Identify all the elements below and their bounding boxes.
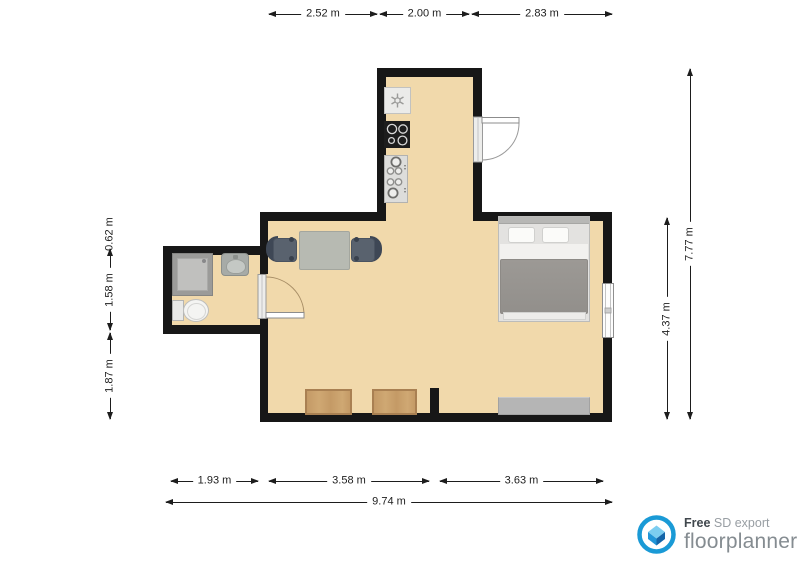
dimension-left-2: 1.58 m <box>105 248 115 331</box>
bed-pillow-right <box>542 227 569 243</box>
arrow-right-icon <box>605 11 613 17</box>
arrow-right-icon <box>596 478 604 484</box>
dimension-top-2: 2.00 m <box>379 9 470 19</box>
arrow-down-icon <box>107 323 113 331</box>
dimension-right-outer: 7.77 m <box>685 68 695 420</box>
fan-icon <box>389 92 406 109</box>
dimension-right-inner: 4.37 m <box>662 217 672 420</box>
brand-name: floorplanner <box>684 531 797 552</box>
wall-kitchen-right-upper <box>473 68 482 117</box>
door-leaf <box>266 313 304 319</box>
arrow-up-icon <box>107 248 113 256</box>
arrow-down-icon <box>107 412 113 420</box>
dim-label: 2.00 m <box>403 8 447 21</box>
dim-label: 4.37 m <box>661 297 674 341</box>
dresser <box>498 397 590 415</box>
wall-interior-stub <box>430 388 439 422</box>
dim-label: 1.93 m <box>193 475 237 488</box>
bathroom-door <box>254 272 310 322</box>
dim-label: 1.58 m <box>104 268 117 312</box>
window <box>602 283 614 338</box>
chair-left <box>266 236 297 262</box>
dim-label: 3.58 m <box>327 475 371 488</box>
floorplanner-logo: Free SD export floorplanner <box>636 514 797 555</box>
entry-door <box>471 112 523 166</box>
washbasin <box>221 253 249 276</box>
wood-cabinet-right <box>372 389 417 415</box>
door-leaf <box>482 118 519 124</box>
arrow-left-icon <box>471 11 479 17</box>
dim-label: 1.87 m <box>104 354 117 398</box>
dimension-bottom-2: 3.58 m <box>268 476 430 486</box>
dim-label: 9.74 m <box>367 496 411 509</box>
wood-cabinet-left <box>305 389 352 415</box>
arrow-right-icon <box>462 11 470 17</box>
bed-footboard <box>503 312 586 320</box>
arrow-up-icon <box>687 68 693 76</box>
arrow-up-icon <box>664 217 670 225</box>
chair-armrest <box>289 237 294 242</box>
chair-armrest <box>354 256 359 261</box>
export-caption-free: Free <box>684 516 710 530</box>
toilet-seat <box>187 303 206 320</box>
logo-text: Free SD export floorplanner <box>684 517 797 552</box>
arrow-right-icon <box>605 499 613 505</box>
dim-label: 2.83 m <box>520 8 564 21</box>
arrow-left-icon <box>170 478 178 484</box>
dimension-bottom-total: 9.74 m <box>165 497 613 507</box>
shower <box>172 253 213 296</box>
arrow-left-icon <box>268 478 276 484</box>
bed-headboard <box>499 217 589 224</box>
arrow-left-icon <box>268 11 276 17</box>
dimension-left-3: 1.87 m <box>105 332 115 420</box>
bed-pillow-left <box>508 227 535 243</box>
floorplan-canvas: 2.52 m 2.00 m 2.83 m 0.62 m 1.58 m 1.87 … <box>0 0 800 566</box>
wall-bathroom-bottom <box>163 325 260 334</box>
arrow-down-icon <box>687 412 693 420</box>
bed-duvet <box>500 259 588 314</box>
arrow-left-icon <box>439 478 447 484</box>
chair-armrest <box>354 237 359 242</box>
export-caption: Free SD export <box>684 517 797 530</box>
arrow-right-icon <box>251 478 259 484</box>
dim-label: 3.63 m <box>500 475 544 488</box>
double-bed <box>498 216 590 322</box>
arrow-left-icon <box>165 499 173 505</box>
dim-label: 7.77 m <box>684 222 697 266</box>
dim-label: 2.52 m <box>301 8 345 21</box>
dimension-top-3: 2.83 m <box>471 9 613 19</box>
shower-drain-icon <box>202 259 206 263</box>
wall-left-lower <box>260 318 268 422</box>
arrow-right-icon <box>422 478 430 484</box>
arrow-right-icon <box>370 11 378 17</box>
gas-hob-icon <box>384 155 408 203</box>
export-caption-type: SD export <box>710 516 769 530</box>
floorplanner-logo-icon <box>636 514 677 555</box>
wall-top-west <box>260 212 386 221</box>
basin-bowl <box>226 259 246 274</box>
wall-bathroom-left <box>163 246 172 334</box>
dishwasher-icon <box>384 87 411 114</box>
cooktop-icon <box>384 121 410 148</box>
arrow-left-icon <box>379 11 387 17</box>
chair-right <box>351 236 382 262</box>
dimension-bottom-3: 3.63 m <box>439 476 604 486</box>
chair-armrest <box>289 256 294 261</box>
arrow-down-icon <box>664 412 670 420</box>
dining-table <box>299 231 350 270</box>
dimension-top-1: 2.52 m <box>268 9 378 19</box>
dimension-bottom-1: 1.93 m <box>170 476 259 486</box>
dimension-left-1: 0.62 m <box>105 219 115 248</box>
wall-kitchen-top <box>377 68 482 77</box>
arrow-up-icon <box>107 332 113 340</box>
toilet <box>172 299 210 322</box>
